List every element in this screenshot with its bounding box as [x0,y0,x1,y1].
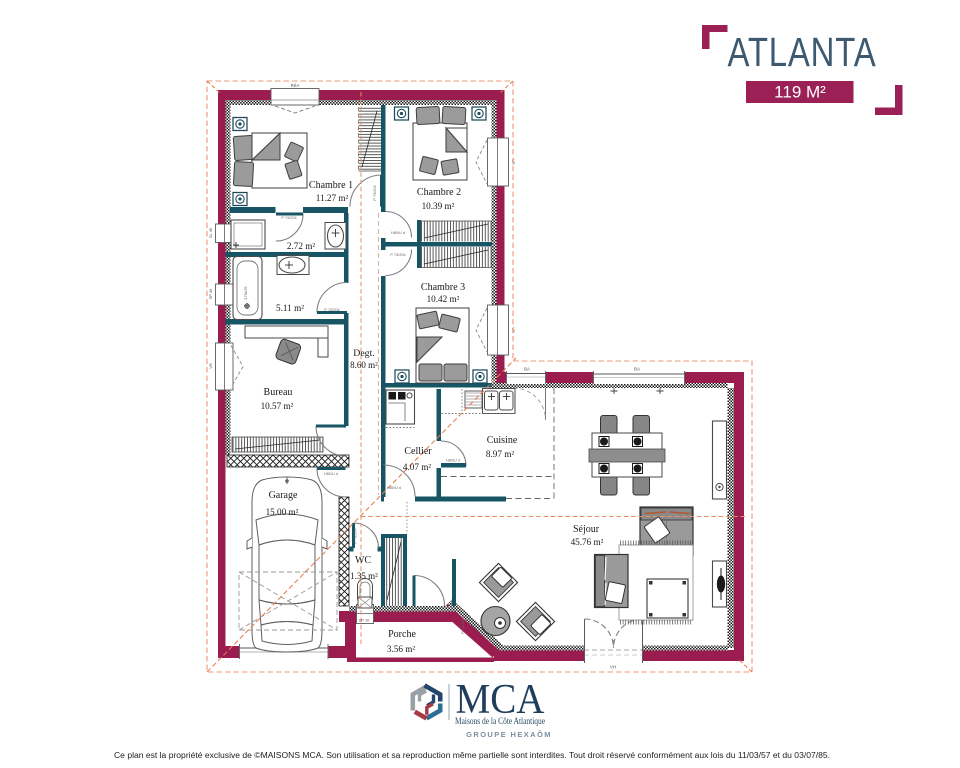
svg-text:Degt.: Degt. [353,348,375,359]
svg-text:VR: VR [208,363,213,369]
svg-text:10.57 m²: 10.57 m² [261,401,294,411]
svg-text:P 73/204: P 73/204 [390,253,405,257]
svg-text:GROUPE HEXAÔM: GROUPE HEXAÔM [466,730,552,739]
svg-text:4.07 m²: 4.07 m² [403,462,432,472]
svg-text:8.97 m²: 8.97 m² [486,449,515,459]
svg-text:P 73/204: P 73/204 [373,185,377,200]
svg-text:10.42 m²: 10.42 m² [427,294,460,304]
svg-text:H80/U d: H80/U d [391,231,405,235]
svg-text:P 73/204: P 73/204 [281,216,296,220]
svg-text:Séjour: Séjour [573,524,600,535]
svg-text:5.11 m²: 5.11 m² [276,303,304,313]
svg-text:P 73/204: P 73/204 [324,308,339,312]
svg-text:Garage: Garage [269,490,298,501]
svg-text:Chambre 1: Chambre 1 [309,180,353,191]
svg-text:8.60 m²: 8.60 m² [350,360,378,370]
svg-text:P 73/204: P 73/204 [354,528,358,543]
svg-text:BA: BA [524,367,530,372]
svg-text:119 M²: 119 M² [774,83,826,102]
svg-text:Chambre 3: Chambre 3 [421,282,465,293]
svg-text:15.00 m²: 15.00 m² [266,507,299,517]
svg-text:SP 10: SP 10 [359,618,371,623]
svg-text:1.35 m²: 1.35 m² [350,571,378,581]
svg-text:Maisons de la Côte Atlantique: Maisons de la Côte Atlantique [455,716,545,726]
svg-text:Ce plan est la propriété exclu: Ce plan est la propriété exclusive de ©M… [114,751,830,760]
svg-text:H80/U d: H80/U d [324,472,338,476]
svg-text:Cellier: Cellier [404,446,432,457]
svg-text:RêA: RêA [291,83,300,88]
svg-text:11.27 m²: 11.27 m² [316,193,349,203]
svg-text:2.72 m²: 2.72 m² [287,241,316,251]
svg-text:Chambre 2: Chambre 2 [417,187,461,198]
svg-text:SL 49: SL 49 [208,227,213,238]
svg-text:ATLANTA: ATLANTA [728,29,877,75]
svg-text:Porche: Porche [388,629,416,640]
svg-text:BA: BA [634,367,640,372]
svg-text:10.39 m²: 10.39 m² [422,201,455,211]
svg-text:Bureau: Bureau [264,387,293,398]
svg-text:45.76 m²: 45.76 m² [571,537,604,547]
svg-text:Cuisine: Cuisine [487,435,518,446]
svg-text:170x75: 170x75 [243,286,248,300]
svg-text:3.56 m²: 3.56 m² [387,644,416,654]
svg-text:VH: VH [610,665,616,670]
svg-text:H80/U d: H80/U d [387,486,401,490]
svg-text:SP 49: SP 49 [208,288,213,300]
svg-text:P 73/204: P 73/204 [461,618,465,633]
svg-text:H80/U d: H80/U d [446,459,460,463]
svg-text:WC: WC [355,555,371,566]
